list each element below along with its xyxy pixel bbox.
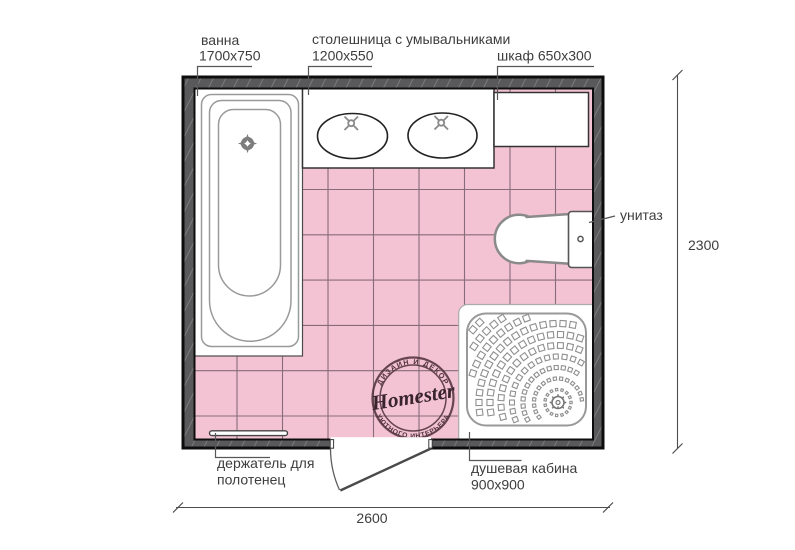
svg-text:столешница с умывальниками: столешница с умывальниками [312,31,510,47]
svg-text:1200х550: 1200х550 [312,48,374,64]
svg-text:ванна: ванна [201,32,240,48]
svg-text:900х900: 900х900 [471,477,525,493]
svg-text:унитаз: унитаз [620,207,663,223]
svg-text:душевая кабина: душевая кабина [471,460,578,476]
svg-text:шкаф 650х300: шкаф 650х300 [497,48,592,64]
svg-text:1700х750: 1700х750 [199,48,261,64]
svg-text:полотенец: полотенец [217,472,285,488]
svg-text:2600: 2600 [356,510,387,526]
svg-text:2300: 2300 [688,237,719,253]
